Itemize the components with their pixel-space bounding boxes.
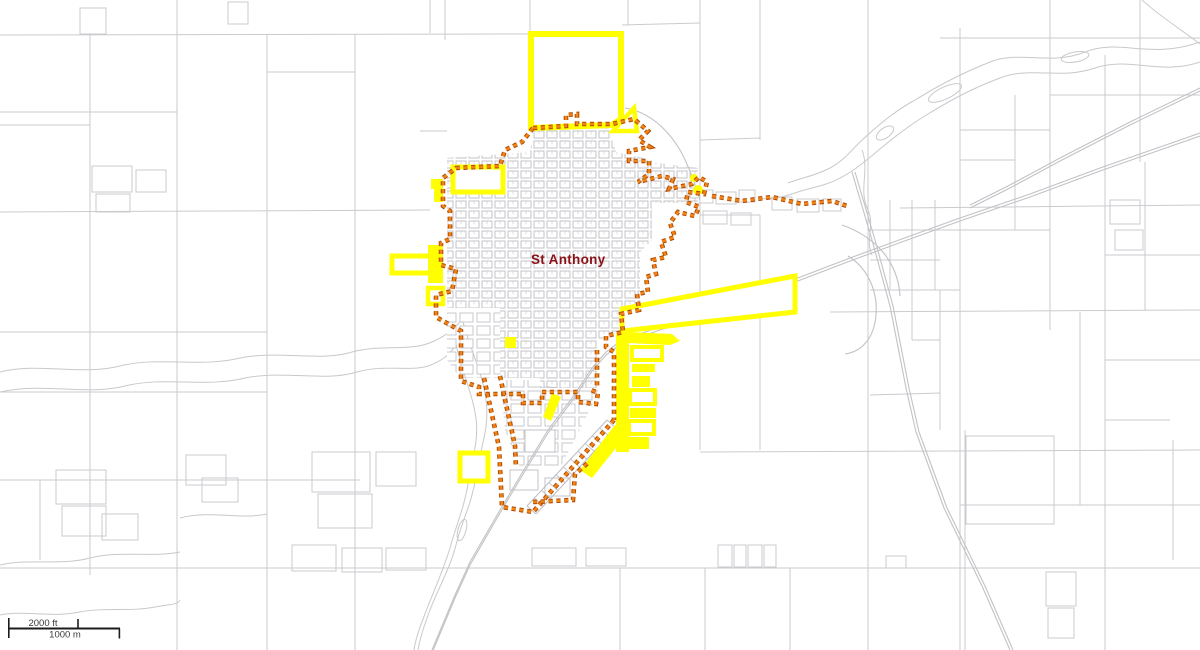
parcel-outline — [886, 556, 906, 568]
parcel-line — [0, 210, 430, 212]
city-block — [525, 430, 555, 452]
city-blocks-sparse-west — [447, 310, 500, 378]
parcel-outline — [62, 506, 106, 536]
parcel-outline — [318, 494, 372, 528]
river-line — [180, 514, 267, 518]
selected-parcel[interactable] — [628, 332, 680, 345]
parcel-outline — [80, 8, 106, 34]
selected-parcel[interactable] — [632, 364, 655, 372]
map-canvas[interactable]: St Anthony 2000 ft 1000 m — [0, 0, 1200, 650]
selected-parcel[interactable] — [629, 421, 654, 434]
parcel-line — [870, 393, 940, 395]
parcel-line — [830, 310, 1200, 312]
parcel-outline — [56, 470, 106, 504]
parcel-outline — [703, 211, 727, 224]
selected-parcel[interactable] — [630, 390, 655, 404]
parcel-line — [1142, 0, 1200, 44]
river-line — [0, 600, 180, 615]
river-island — [455, 518, 468, 541]
river-line — [414, 344, 477, 650]
selected-parcel[interactable] — [630, 408, 656, 418]
selected-parcel[interactable] — [632, 347, 662, 360]
parcel-line — [700, 450, 1200, 452]
parcel-outline — [1115, 230, 1143, 250]
city-label: St Anthony — [531, 252, 606, 267]
parcel-line — [700, 138, 760, 140]
parcel-outline — [716, 192, 736, 204]
selected-parcel[interactable] — [453, 167, 503, 192]
selected-parcel[interactable] — [622, 276, 795, 331]
parcel-outline — [586, 548, 626, 566]
parcel-outline — [1046, 572, 1076, 606]
parcel-outline — [292, 545, 336, 571]
parcel-outline — [376, 452, 416, 486]
parcel-outline — [764, 545, 776, 567]
parcel-outline — [102, 514, 138, 540]
selected-parcel[interactable] — [460, 453, 488, 481]
selected-parcel[interactable] — [505, 337, 516, 348]
parcel-outline — [734, 545, 746, 567]
river-island — [926, 80, 964, 106]
selected-parcel[interactable] — [531, 34, 621, 128]
river-line — [0, 344, 456, 392]
parcel-outline — [92, 166, 132, 192]
river-line — [788, 42, 1200, 183]
parcel-outline — [386, 548, 426, 570]
scale-feet-label: 2000 ft — [28, 618, 57, 629]
map-viewport[interactable]: St Anthony 2000 ft 1000 m — [0, 0, 1200, 650]
river-line — [0, 318, 462, 372]
parcel-outline — [718, 545, 732, 567]
parcel-outline — [228, 2, 248, 24]
parcel-outline — [96, 194, 130, 212]
parcel-outline — [202, 478, 238, 502]
road-curve — [845, 256, 876, 354]
parcel-outline — [1110, 200, 1140, 224]
parcel-outline — [966, 436, 1054, 524]
scale-meters-label: 1000 m — [49, 630, 81, 641]
parcel-outline — [1048, 608, 1074, 638]
selected-parcel[interactable] — [629, 437, 649, 449]
scale-bar: 2000 ft 1000 m — [8, 618, 120, 641]
parcel-line — [622, 23, 700, 25]
road-line — [970, 88, 1200, 205]
road-line — [855, 172, 1013, 650]
parcel-outline — [532, 548, 576, 566]
selected-parcel[interactable] — [632, 376, 650, 387]
parcel-outline — [312, 452, 370, 492]
parcel-outline — [136, 170, 166, 192]
road-line — [970, 91, 1200, 208]
parcel-outline — [748, 545, 762, 567]
